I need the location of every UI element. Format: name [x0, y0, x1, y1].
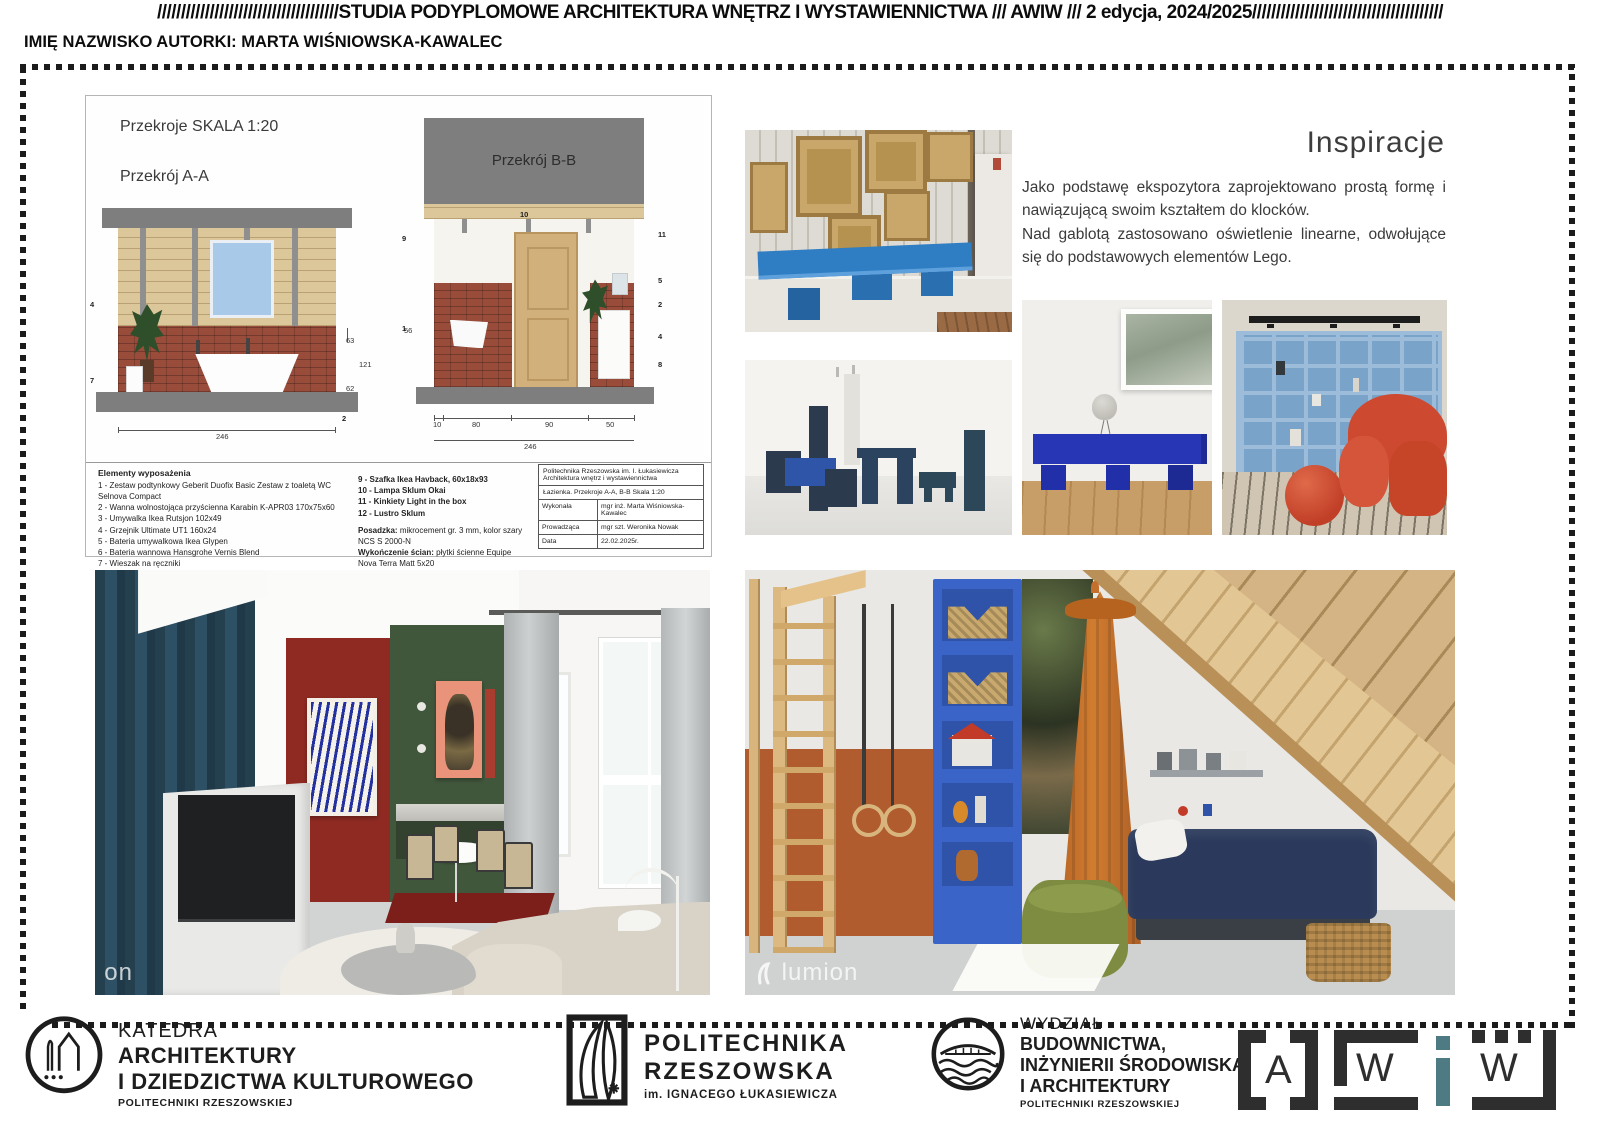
photo3-bench-foot: [1106, 465, 1131, 491]
living-sofa-cushion: [464, 944, 562, 995]
kids-toy: [953, 801, 967, 823]
photo1-white-column: [975, 154, 1012, 279]
aa-faucet: [196, 340, 200, 354]
kids-red-ball-toy: [1178, 806, 1188, 816]
logo-katedra: KATEDRA ARCHITEKTURY I DZIEDZICTWA KULTU…: [24, 1012, 474, 1109]
poster-page: //////////////////////////////////////ST…: [0, 0, 1600, 1131]
bb-door-panel: [527, 247, 569, 310]
kids-shelf-cell: [942, 842, 1013, 886]
photo1-bench-leg: [852, 271, 892, 299]
kids-ring-strap: [862, 604, 866, 808]
bb-mirror: [612, 273, 628, 295]
living-red-panel: [485, 689, 495, 778]
bb-floor-slab: [416, 387, 654, 404]
legend-item: 10 - Lampa Sklum Okai: [358, 485, 530, 496]
legend-item: 1 - Zestaw podtynkowy Geberit Duofix Bas…: [98, 480, 350, 502]
living-tv-screen: [178, 795, 295, 921]
titleblock-row: Prowadząca mgr szt. Weronika Nowak: [539, 520, 703, 534]
dim-tick: [588, 415, 589, 421]
header-title: STUDIA PODYPLOMOWE ARCHITEKTURA WNĘTRZ I…: [339, 2, 1252, 23]
awiw-tile-w1: W: [1334, 1030, 1418, 1110]
living-vase: [396, 923, 414, 953]
dim-tick: [511, 415, 512, 421]
titleblock-value: mgr inż. Marta Wiśniowska-Kawalec: [598, 500, 703, 520]
photo4-linear-light: [1249, 316, 1420, 323]
kids-shelf-cell: [942, 783, 1013, 827]
titleblock-label: Wykonała: [539, 500, 598, 520]
awiw-bar: [1290, 1030, 1318, 1043]
bb-door-panel: [527, 318, 569, 381]
living-floor-lamp-stem: [676, 876, 679, 991]
katedra-line3: I DZIEDZICTWA KULTUROWEGO: [118, 1069, 474, 1095]
prz-line3: im. IGNACEGO ŁUKASIEWICZA: [644, 1089, 848, 1101]
aa-stud: [192, 228, 198, 326]
photo1-wood-frame: [796, 136, 863, 217]
awiw-i-stem: [1436, 1058, 1450, 1106]
header-slashes-left: //////////////////////////////////////: [157, 2, 339, 23]
legend-item: 2 - Wanna wolnostojąca przyścienna Karab…: [98, 502, 350, 513]
kids-watermark: lumion: [782, 959, 859, 987]
frame-border-top: [20, 64, 1575, 70]
kids-basket: [948, 599, 1008, 639]
aa-stud: [292, 228, 298, 326]
dim-tick: [118, 427, 119, 433]
photo2-table-leg: [862, 458, 878, 504]
photo2-table-leg: [897, 458, 913, 504]
wydzial-line3: INŻYNIERII ŚRODOWISKA: [1020, 1055, 1245, 1076]
photo2-bench-leg: [945, 488, 953, 502]
section-a-label: Przekrój A-A: [120, 168, 209, 186]
header-slashes-right: ////////////////////////////////////////: [1252, 2, 1443, 23]
bb-toilet: [450, 320, 488, 349]
titleblock-org: Politechnika Rzeszowska im. I. Łukasiewi…: [539, 465, 703, 485]
kids-shelf-cell: [942, 589, 1013, 640]
photo2-block: [825, 469, 857, 508]
kids-wicker-basket: [1306, 923, 1391, 983]
awiw-tile-a: A: [1238, 1030, 1318, 1110]
photo4-light-head: [1393, 324, 1400, 329]
photo1-wood-frame: [865, 130, 926, 193]
kids-shelf-cell: [942, 721, 1013, 769]
photo4-red-ball-ottoman: [1285, 465, 1344, 526]
bb-beam-band: [424, 204, 644, 219]
titleblock-org2: Architektura wnętrz i wystawiennictwa: [543, 475, 699, 482]
awiw-bar: [1334, 1030, 1347, 1086]
awiw-bar: [1472, 1097, 1556, 1110]
photo1-wood-frame: [927, 132, 973, 182]
inspiration-heading: Inspiracje: [1022, 126, 1445, 160]
titleblock-row: Wykonała mgr inż. Marta Wiśniowska-Kawal…: [539, 499, 703, 520]
photo1-wood-floor: [937, 312, 1012, 332]
dim-tick: [634, 415, 635, 421]
awiw-bar: [1238, 1030, 1266, 1043]
titleblock-label: Prowadząca: [539, 521, 598, 534]
wydzial-line1: WYDZIAŁ: [1020, 1014, 1245, 1034]
photo1-wood-frame: [750, 162, 788, 233]
bb-stud: [526, 219, 531, 233]
awiw-bar-dot: [1518, 1030, 1531, 1043]
photo4-red-chair-arm: [1339, 436, 1389, 507]
titleblock-value: mgr szt. Weronika Nowak: [598, 521, 703, 534]
awiw-bar-dot: [1472, 1030, 1485, 1043]
photo1-figurine: [993, 158, 1001, 170]
bb-stud: [462, 219, 467, 233]
titleblock-subject: Łazienka. Przekroje A-A, B-B Skala 1:20: [539, 486, 669, 499]
kids-shelf-frame: [1229, 751, 1246, 770]
living-watermark: on: [104, 959, 133, 987]
bb-callout: 8: [658, 360, 662, 369]
bb-dim-total: 246: [524, 442, 537, 451]
awiw-bar: [1238, 1097, 1266, 1110]
living-dining-chair: [433, 825, 459, 863]
bb-dim-seg1: 10: [433, 420, 441, 429]
section-a-drawing: 246 63 121 62 4 7 2: [96, 208, 358, 448]
render-living-room: on: [95, 570, 710, 995]
awiw-bar: [1290, 1097, 1318, 1110]
awiw-bar-dot: [1495, 1030, 1508, 1043]
politechnika-logo-icon: [566, 1014, 628, 1106]
legend-finish-line: Posadzka: mikrocement gr. 3 mm, kolor sz…: [358, 525, 530, 547]
legend-item: 11 - Kinkiety Light in the box: [358, 496, 530, 507]
katedra-logo-icon: [24, 1012, 104, 1104]
section-drawings-sheet: Przekroje SKALA 1:20 Przekrój A-A: [85, 95, 712, 557]
kids-watermark-group: lumion: [756, 959, 859, 987]
awiw-i-dot: [1436, 1036, 1450, 1050]
dim-tick: [335, 427, 336, 433]
kids-shelf-frame: [1157, 752, 1173, 770]
kids-wall-shelf: [1150, 770, 1264, 777]
living-sconce: [417, 744, 426, 753]
kids-ring-strap: [891, 604, 895, 808]
kids-basket: [948, 664, 1008, 704]
kids-shelf-frame: [1206, 753, 1221, 769]
photo4-shelf-object: [1290, 429, 1301, 445]
photo3-lamp: [1092, 394, 1117, 420]
photo1-bench-leg: [788, 288, 820, 320]
titleblock: Politechnika Rzeszowska im. I. Łukasiewi…: [538, 464, 704, 549]
aa-callout: 2: [342, 414, 346, 423]
titleblock-label: Data: [539, 535, 598, 548]
photo4-red-chair-seat: [1389, 441, 1448, 516]
inspiration-photo-shelf-red-chair: [1222, 300, 1447, 535]
living-dining-chair: [504, 842, 533, 889]
legend-right-column: 9 - Szafka Ikea Havback, 60x18x93 10 - L…: [358, 474, 530, 581]
living-window-mullion: [648, 642, 652, 884]
aa-callout: 7: [90, 376, 94, 385]
section-b-drawing: Przekrój B-B: [416, 118, 654, 452]
bb-callout: 2: [658, 300, 662, 309]
bb-dim-seg3: 90: [545, 420, 553, 429]
frame-border-right: [1569, 64, 1575, 1028]
living-portrait-art: [436, 681, 482, 779]
kids-blue-shelf: [933, 579, 1022, 945]
living-dining-chair: [406, 834, 435, 881]
kids-toy: [975, 796, 986, 822]
photo4-light-head: [1330, 324, 1337, 329]
legend-item: 6 - Bateria wannowa Hansgrohe Vernis Ble…: [98, 547, 350, 558]
prz-line2: RZESZOWSKA: [644, 1058, 848, 1086]
kids-ladder-rail: [749, 579, 761, 953]
photo1-bench-leg: [921, 269, 953, 295]
legend-left-column: Elementy wyposażenia 1 - Zestaw podtynko…: [98, 468, 350, 581]
photo2-spotlight: [836, 367, 839, 377]
bb-dim-seg2: 80: [472, 420, 480, 429]
logo-wydzial: WYDZIAŁ BUDOWNICTWA, INŻYNIERII ŚRODOWIS…: [930, 1014, 1245, 1110]
legend-item: 7 - Wieszak na ręczniki: [98, 558, 350, 569]
awiw-letter-a: A: [1265, 1048, 1292, 1093]
kids-blue-cup-toy: [1203, 804, 1212, 816]
logo-awiw: A W W: [1238, 1030, 1558, 1110]
photo3-bench-foot: [1041, 465, 1066, 491]
aa-dim-total: 246: [216, 432, 229, 441]
titleblock-subject-row: Łazienka. Przekroje A-A, B-B Skala 1:20: [539, 485, 703, 499]
titleblock-value: 22.02.2025r.: [598, 535, 703, 548]
wydzial-line2: BUDOWNICTWA,: [1020, 1034, 1245, 1055]
photo4-shelf-object: [1312, 394, 1321, 406]
bb-attic-block: Przekrój B-B: [424, 118, 644, 204]
bb-dim-line2: [434, 440, 634, 441]
inspiration-photo-blue-bench: [745, 130, 1012, 332]
bb-wall: [434, 219, 634, 387]
bb-callout: 10: [520, 210, 528, 219]
living-dining-chair: [476, 829, 505, 871]
bb-dim-line1: [434, 418, 634, 419]
photo2-table-top: [857, 448, 916, 459]
legend-item: 9 - Szafka Ikea Havback, 60x18x93: [358, 474, 530, 485]
living-portrait-figure: [445, 694, 475, 770]
aa-dim-h2: 121: [359, 360, 372, 369]
photo4-shelf-object: [1276, 361, 1285, 375]
photo1-frame-inner: [876, 142, 917, 181]
lumion-logo-icon: [756, 961, 776, 985]
bb-dim-seg4: 50: [606, 420, 614, 429]
living-sconce: [417, 702, 426, 711]
photo3-bench-seat: [1033, 434, 1206, 465]
header-author-line: IMIĘ NAZWISKO AUTORKI: MARTA WIŚNIOWSKA-…: [24, 33, 502, 52]
politechnika-logo-text: POLITECHNIKA RZESZOWSKA im. IGNACEGO ŁUK…: [644, 1014, 848, 1101]
section-b-label: Przekrój B-B: [424, 152, 644, 169]
sheet-title: Przekroje SKALA 1:20: [120, 118, 278, 136]
photo2-block-tall: [964, 430, 985, 511]
aa-window: [210, 240, 275, 319]
kids-toy: [956, 850, 977, 881]
kids-pouf-top: [1028, 884, 1122, 913]
awiw-tile-i: [1434, 1036, 1452, 1106]
awiw-letter-w2: W: [1480, 1046, 1518, 1091]
titleblock-org1: Politechnika Rzeszowska im. I. Łukasiewi…: [543, 468, 699, 475]
kids-toy-house-body: [952, 735, 992, 765]
finish-label: Wykończenie ścian:: [358, 548, 434, 557]
kids-canopy-crown: [1065, 598, 1136, 619]
wydzial-logo-text: WYDZIAŁ BUDOWNICTWA, INŻYNIERII ŚRODOWIS…: [1020, 1014, 1245, 1110]
legend-divider: [86, 462, 711, 463]
bb-stud: [586, 219, 591, 233]
living-blue-stripe-art: [307, 698, 377, 817]
frame-border-left: [20, 64, 26, 1009]
photo4-shelf-object: [1353, 378, 1360, 392]
wydzial-logo-icon: [930, 1014, 1006, 1094]
awiw-letter-w1: W: [1356, 1046, 1394, 1091]
katedra-logo-text: KATEDRA ARCHITEKTURY I DZIEDZICTWA KULTU…: [118, 1012, 474, 1109]
aa-ceiling-slab: [102, 208, 352, 228]
inspiration-para1: Jako podstawę ekspozytora zaprojektowano…: [1022, 179, 1446, 219]
aa-dim-line: [118, 430, 336, 431]
awiw-bar: [1543, 1030, 1556, 1097]
inspiration-paragraph: Jako podstawę ekspozytora zaprojektowano…: [1022, 176, 1446, 269]
photo3-lamp-leg: [1100, 420, 1104, 434]
kids-canopy-finial: [1091, 581, 1100, 594]
aa-dim-h1: 63: [346, 336, 354, 345]
katedra-line1: KATEDRA: [118, 1020, 474, 1043]
render-kids-room: lumion: [745, 570, 1455, 995]
bb-callout: 1: [402, 324, 406, 333]
photo1-frame-inner: [807, 149, 852, 204]
kids-shelf-cell: [942, 655, 1013, 706]
wydzial-line4: I ARCHITEKTURY: [1020, 1076, 1245, 1097]
logo-politechnika: POLITECHNIKA RZESZOWSKA im. IGNACEGO ŁUK…: [566, 1014, 848, 1106]
kids-ladder-rungs: [773, 621, 834, 953]
legend-item: 4 - Grzejnik Ultimate UT1 160x24: [98, 525, 350, 536]
inspiration-photo-block-furniture: [745, 360, 1012, 535]
bb-callout: 9: [402, 234, 406, 243]
photo2-bench-low: [919, 472, 956, 488]
legend-title: Elementy wyposażenia: [98, 468, 350, 480]
photo3-lamp-leg: [1106, 420, 1110, 434]
finish-label: Posadzka:: [358, 526, 398, 535]
wydzial-line5: POLITECHNIKI RZESZOWSKIEJ: [1020, 1099, 1245, 1110]
kids-floor-light-patch: [953, 944, 1120, 991]
aa-dim-h3: 62: [346, 384, 354, 393]
photo3-wall-art: [1121, 309, 1212, 390]
titleblock-row: Data 22.02.2025r.: [539, 534, 703, 548]
dim-tick: [443, 415, 444, 421]
katedra-line4: POLITECHNIKI RZESZOWSKIEJ: [118, 1097, 474, 1109]
photo1-wood-frame: [884, 191, 930, 241]
legend-finish-line: Wykończenie ścian: płytki ścienne Equipe…: [358, 547, 530, 569]
kids-gym-ring: [852, 804, 886, 838]
inspiration-para2: Nad gablotą zastosowano oświetlenie line…: [1022, 226, 1446, 266]
awiw-tile-w2: W: [1468, 1030, 1556, 1110]
bb-callout: 4: [658, 332, 662, 341]
legend-item: 5 - Bateria umywalkowa Ikea Glypen: [98, 536, 350, 547]
photo2-bench-leg: [924, 488, 932, 502]
header-line1: //////////////////////////////////////ST…: [0, 2, 1600, 24]
living-floor-lamp-shade: [618, 910, 661, 931]
aa-floor-slab: [96, 392, 358, 412]
awiw-bar: [1334, 1097, 1418, 1110]
legend-item: 12 - Lustro Sklum: [358, 508, 530, 519]
bb-callout: 11: [658, 230, 666, 239]
photo3-bench-foot: [1168, 465, 1193, 491]
kids-toy-house-roof: [948, 723, 996, 739]
legend-item: 3 - Umywalka Ikea Rutsjon 102x49: [98, 513, 350, 524]
kids-shelf-frame: [1179, 749, 1197, 769]
prz-line1: POLITECHNIKA: [644, 1030, 848, 1058]
katedra-line2: ARCHITEKTURY: [118, 1043, 474, 1069]
inspiration-photo-cobalt-bench: [1022, 300, 1212, 535]
aa-faucet: [246, 338, 250, 354]
bb-callout: 5: [658, 276, 662, 285]
bb-door: [514, 232, 578, 391]
bb-cabinet: [598, 310, 630, 379]
aa-callout: 4: [90, 300, 94, 309]
living-kitchen-counter: [396, 804, 513, 821]
photo4-light-head: [1267, 324, 1274, 329]
